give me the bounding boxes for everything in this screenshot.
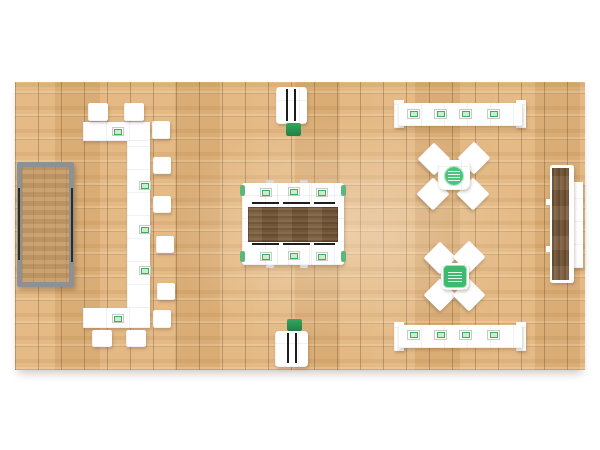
kiosk-shelf-edge bbox=[295, 333, 297, 363]
logo-plaque bbox=[112, 314, 124, 323]
logo-plaque bbox=[260, 252, 272, 261]
chair-seam bbox=[309, 243, 310, 264]
stool bbox=[157, 283, 175, 300]
logo-glyph bbox=[448, 271, 461, 283]
corner-accent bbox=[240, 185, 245, 196]
logo-plaque bbox=[487, 330, 500, 340]
logo-glyph bbox=[448, 171, 459, 181]
logo-plaque bbox=[112, 127, 124, 136]
stool bbox=[153, 310, 171, 328]
center-meeting-table-top bbox=[248, 207, 338, 242]
kiosk-shelf-edge bbox=[294, 89, 296, 121]
logo-plaque bbox=[434, 330, 447, 340]
stool bbox=[126, 330, 146, 347]
logo-plaque bbox=[288, 187, 300, 196]
chair-armrest-line bbox=[252, 202, 335, 204]
stool bbox=[88, 103, 108, 121]
left-wood-table-top bbox=[22, 167, 69, 282]
logo-plaque bbox=[459, 330, 472, 340]
stool bbox=[152, 121, 170, 139]
stool bbox=[153, 157, 171, 174]
chair-headrest bbox=[300, 265, 308, 268]
top-kiosk-green-base bbox=[286, 123, 301, 136]
right-wood-counter bbox=[550, 165, 574, 283]
corner-accent bbox=[240, 251, 245, 262]
top-display-kiosk bbox=[276, 87, 307, 124]
logo-plaque bbox=[459, 109, 472, 119]
booth-render bbox=[0, 0, 600, 450]
x-hub-green-table bbox=[444, 166, 464, 186]
left-table-rail-right bbox=[71, 188, 73, 262]
logo-plaque bbox=[434, 109, 447, 119]
chair-armrest-line bbox=[252, 243, 335, 245]
logo-plaque bbox=[407, 109, 420, 119]
logo-plaque bbox=[316, 188, 328, 197]
logo-plaque bbox=[487, 109, 500, 119]
chair-headrest bbox=[266, 265, 274, 268]
logo-plaque bbox=[407, 330, 420, 340]
bottom-display-kiosk bbox=[275, 331, 308, 367]
stool bbox=[153, 196, 171, 213]
bottom-kiosk-green-base bbox=[287, 319, 302, 331]
x-hub-green-table bbox=[443, 265, 467, 288]
stool bbox=[156, 236, 174, 253]
left-table-rail-left bbox=[18, 188, 20, 260]
corner-accent bbox=[341, 251, 346, 262]
logo-plaque bbox=[316, 252, 328, 261]
right-wood-counter-top bbox=[552, 168, 569, 280]
corner-accent bbox=[341, 185, 346, 196]
chair-headrest bbox=[266, 180, 274, 183]
kiosk-shelf-edge bbox=[287, 333, 289, 363]
logo-plaque bbox=[139, 266, 151, 275]
stool bbox=[124, 103, 144, 121]
logo-plaque bbox=[260, 188, 272, 197]
kiosk-shelf-edge bbox=[286, 89, 288, 121]
logo-plaque bbox=[139, 181, 151, 190]
logo-plaque bbox=[139, 225, 151, 234]
stool bbox=[92, 330, 112, 347]
chair-headrest bbox=[300, 180, 308, 183]
left-wood-table bbox=[17, 162, 74, 287]
logo-plaque bbox=[288, 251, 300, 260]
chair-seam bbox=[277, 243, 278, 264]
